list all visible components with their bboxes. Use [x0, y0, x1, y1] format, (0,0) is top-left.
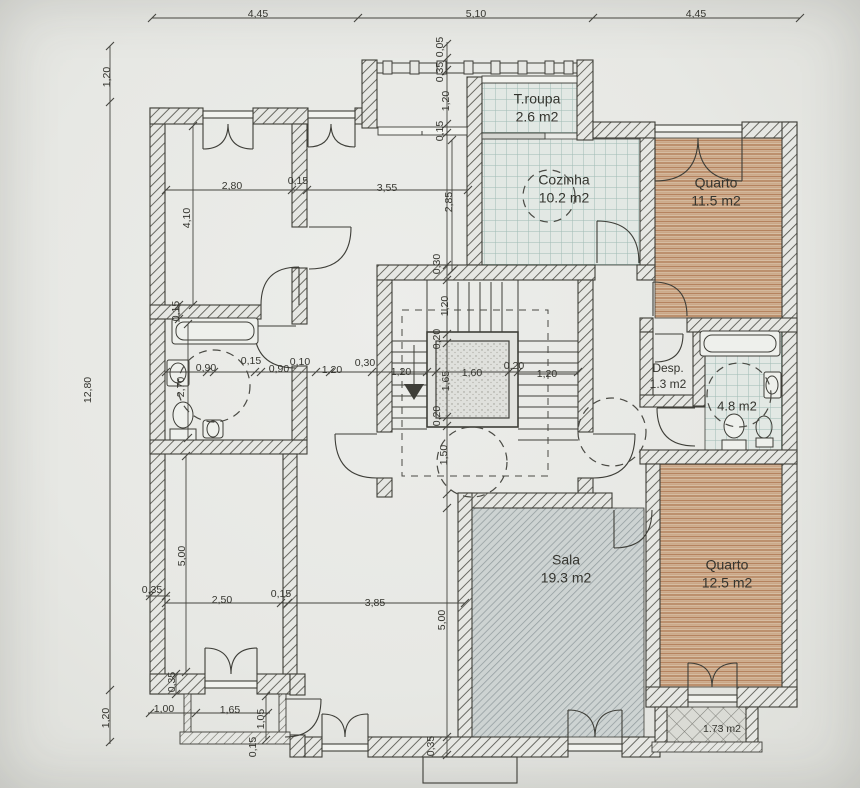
sala-floor — [472, 508, 644, 737]
window-room-c — [205, 648, 257, 688]
dimension-label: 1,20 — [322, 364, 343, 376]
dimension-label: 0,30 — [431, 254, 443, 275]
dimension-label: 2,85 — [443, 192, 455, 213]
dimension-label: 1,00 — [154, 703, 175, 715]
floor-plan-drawing: 4,455,104,451,2012,801,200,050,351,200,1… — [0, 0, 860, 788]
room-area-t-roupa: 2.6 m2 — [516, 109, 559, 125]
dimension-label: 0,15 — [288, 175, 309, 187]
room-label-desp: Desp. — [652, 361, 683, 375]
door-desp — [655, 334, 683, 362]
planter-box — [423, 757, 517, 783]
t-roupa-partition — [482, 133, 545, 139]
quarto1-floor — [655, 138, 782, 318]
room-label-quarto-1: Quarto — [695, 175, 738, 191]
dimension-label: 1,05 — [255, 709, 267, 730]
balcony-rail — [180, 732, 290, 744]
dimension-label: 3,55 — [377, 182, 398, 194]
dimension-label: 4,45 — [686, 8, 707, 20]
window-hall — [322, 714, 368, 751]
room-area-banho: 4.8 m2 — [717, 398, 757, 413]
room-label-t-roupa: T.roupa — [514, 91, 561, 107]
bidet-right — [756, 438, 773, 447]
room-label-quarto-2: Quarto — [706, 557, 749, 573]
dimension-label: 0,15 — [241, 355, 262, 367]
dimension-label: 1,20 — [391, 366, 412, 378]
dimension-label: 5,00 — [436, 610, 448, 631]
window-room-a — [203, 111, 253, 149]
dimension-label: 0,30 — [355, 357, 376, 369]
dimension-label: 0,90 — [269, 363, 290, 375]
dimension-label: 2,70 — [175, 377, 187, 398]
toilet-right — [724, 414, 744, 438]
dimension-label: 0,20 — [431, 329, 443, 350]
bidet-left — [203, 420, 223, 438]
room-area-sala: 19.3 m2 — [541, 570, 592, 586]
dimension-label: 1,60 — [462, 367, 483, 379]
door-hall-balcony — [285, 699, 321, 737]
dimension-label: 1,20 — [440, 91, 452, 112]
dimension-label: 5,00 — [176, 546, 188, 567]
room-area-cozinha: 10.2 m2 — [539, 190, 590, 206]
dimension-label: 0,15 — [434, 121, 446, 142]
door-room-b — [309, 227, 351, 269]
door-banho — [657, 408, 695, 446]
dimension-label: 0,90 — [196, 362, 217, 374]
dimension-label: 1,65 — [440, 371, 452, 392]
dimension-label: 1,20 — [439, 296, 451, 317]
dimension-label: 5,10 — [466, 8, 487, 20]
dimension-label: 4,45 — [248, 8, 269, 20]
dimension-label: 0,15 — [271, 588, 292, 600]
dimension-label: 0,35 — [434, 62, 446, 83]
room-area-desp: 1.3 m2 — [650, 377, 687, 391]
dimension-label: 4,10 — [181, 208, 193, 229]
dimension-label: 1,20 — [537, 368, 558, 380]
room-area-quarto-1: 11.5 m2 — [691, 193, 741, 209]
door-apartment-right — [593, 434, 635, 478]
dimension-label: 3,85 — [365, 597, 386, 609]
dimension-label: 0,20 — [504, 360, 525, 372]
floor-plan-page: 4,455,104,451,2012,801,200,050,351,200,1… — [0, 0, 860, 788]
dimension-label: 1,20 — [101, 67, 113, 88]
dimension-label: 1,20 — [100, 708, 112, 729]
dimension-label: 2,80 — [222, 180, 243, 192]
dimension-label: 2,50 — [212, 594, 233, 606]
dimension-label: 0,35 — [142, 584, 163, 596]
room-area-quarto-2: 12.5 m2 — [702, 575, 753, 591]
top-balcony-railing — [377, 61, 577, 74]
dimension-label: 0,35 — [166, 672, 178, 693]
dimension-label: 0,15 — [247, 737, 259, 758]
varanda-rail — [652, 742, 762, 752]
window-room-b — [308, 111, 355, 147]
dimension-label: 1,50 — [438, 445, 450, 466]
dimension-label: 0,15 — [170, 301, 182, 322]
dimension-label: 12,80 — [82, 377, 94, 403]
room-label-cozinha: Cozinha — [538, 172, 590, 188]
toilet-tank-right — [722, 440, 746, 450]
dimension-label: 0,35 — [425, 736, 437, 757]
dimension-label: 0,20 — [431, 406, 443, 427]
stair-direction-arrow — [404, 384, 424, 400]
toilet-left — [173, 402, 193, 428]
dimension-label: 1,65 — [220, 704, 241, 716]
room-area-varanda: 1.73 m2 — [703, 723, 741, 735]
door-apartment-left — [335, 434, 377, 478]
dimension-label: 0,05 — [434, 37, 446, 58]
dimension-label: 0,10 — [290, 356, 311, 368]
room-label-sala: Sala — [552, 552, 580, 568]
